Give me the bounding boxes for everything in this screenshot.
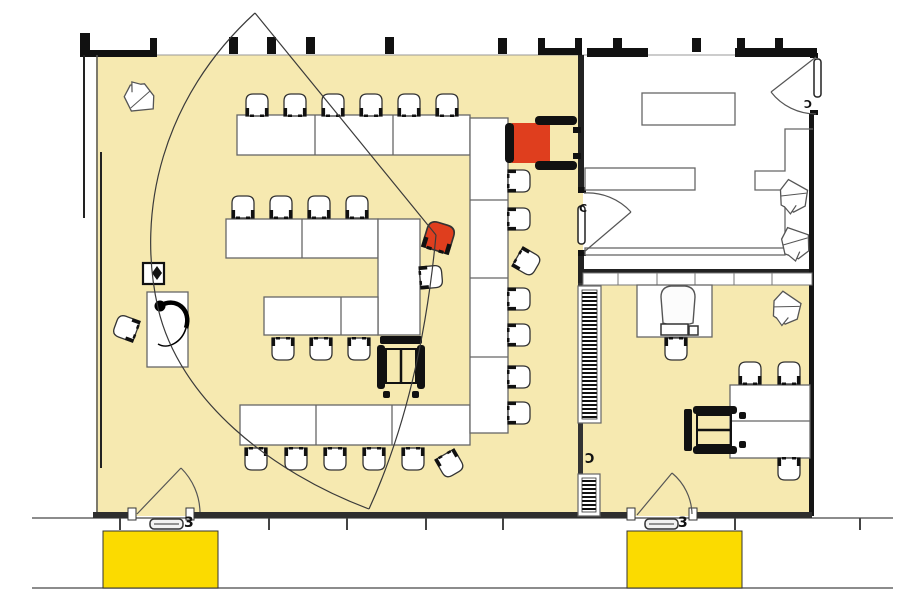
wall-pier bbox=[737, 38, 745, 48]
door-leaf-line bbox=[584, 212, 631, 252]
chair bbox=[310, 337, 333, 360]
chair bbox=[272, 337, 295, 360]
entrance-mat bbox=[103, 531, 218, 588]
door-leaf-line bbox=[771, 57, 816, 92]
chair bbox=[507, 208, 530, 231]
chair bbox=[507, 324, 530, 347]
chair bbox=[778, 362, 801, 385]
chair bbox=[348, 337, 371, 360]
door-jamb bbox=[689, 508, 697, 520]
door-jamb bbox=[810, 53, 818, 58]
window-mullion bbox=[692, 38, 701, 52]
radiator-fins bbox=[582, 478, 596, 512]
wall-segment bbox=[538, 48, 582, 55]
window-mullion bbox=[267, 37, 276, 54]
chair bbox=[270, 196, 293, 219]
partition-wall bbox=[578, 55, 584, 193]
door-closer-glyph: 3 bbox=[184, 515, 194, 531]
bottom-wall bbox=[194, 512, 627, 518]
plant-icon bbox=[781, 226, 811, 262]
chair bbox=[507, 288, 530, 311]
floor-plan-root: 33CƆƆ bbox=[32, 13, 893, 588]
desk-u-right bbox=[378, 219, 420, 335]
wall-pier bbox=[613, 38, 622, 48]
thermostat-glyph: Ɔ bbox=[585, 452, 595, 467]
wall-segment bbox=[83, 50, 155, 57]
door-leaf bbox=[814, 59, 821, 97]
radiator-fins bbox=[582, 290, 597, 419]
door-closer-glyph: 3 bbox=[678, 515, 688, 531]
window-mullion bbox=[498, 38, 507, 54]
bench-counter bbox=[585, 248, 785, 255]
chair bbox=[507, 366, 530, 389]
chair bbox=[778, 457, 801, 480]
chair bbox=[245, 447, 268, 470]
office-chair bbox=[665, 337, 688, 360]
chair bbox=[285, 447, 308, 470]
chair bbox=[322, 94, 345, 117]
chair bbox=[507, 170, 530, 193]
monitor-back bbox=[661, 286, 695, 326]
chair bbox=[284, 94, 307, 117]
chair bbox=[232, 196, 255, 219]
bench-counter bbox=[585, 168, 695, 190]
chair bbox=[246, 94, 269, 117]
chair bbox=[308, 196, 331, 219]
chair bbox=[346, 196, 369, 219]
chair bbox=[507, 402, 530, 425]
chair bbox=[324, 447, 347, 470]
chair bbox=[739, 362, 762, 385]
door-jamb bbox=[627, 508, 635, 520]
keyboard bbox=[661, 324, 688, 335]
desk-row-bottom bbox=[240, 405, 470, 445]
desk-u-bottom bbox=[264, 297, 378, 335]
door-swing-arc bbox=[584, 193, 631, 212]
window-mullion bbox=[306, 37, 315, 54]
chair bbox=[360, 94, 383, 117]
floor-plan: 33CƆƆ bbox=[0, 0, 900, 600]
door-jamb bbox=[128, 508, 136, 520]
cpu-box bbox=[689, 326, 698, 335]
door-hardware-glyph: Ɔ bbox=[804, 98, 812, 111]
bottom-wall bbox=[93, 512, 128, 518]
plant-icon bbox=[778, 179, 808, 215]
chair bbox=[436, 94, 459, 117]
chair bbox=[402, 447, 425, 470]
entrance-mat bbox=[627, 531, 742, 588]
layer-meeting-room bbox=[583, 93, 813, 285]
bottom-wall bbox=[697, 512, 812, 518]
window-mullion bbox=[229, 37, 238, 54]
wall-segment bbox=[587, 48, 648, 57]
desk-row-top bbox=[237, 115, 470, 155]
chair bbox=[398, 94, 421, 117]
chair bbox=[363, 447, 386, 470]
wall-pier bbox=[775, 38, 783, 48]
window-mullion bbox=[385, 37, 394, 54]
desk-column-right bbox=[470, 118, 508, 433]
wall-segment bbox=[735, 48, 817, 57]
floor-plan-page: 33CƆƆ bbox=[0, 0, 900, 600]
counter-row bbox=[583, 273, 812, 285]
door-hardware-glyph: C bbox=[579, 202, 587, 215]
wall-segment bbox=[150, 38, 157, 57]
meeting-table bbox=[642, 93, 735, 125]
